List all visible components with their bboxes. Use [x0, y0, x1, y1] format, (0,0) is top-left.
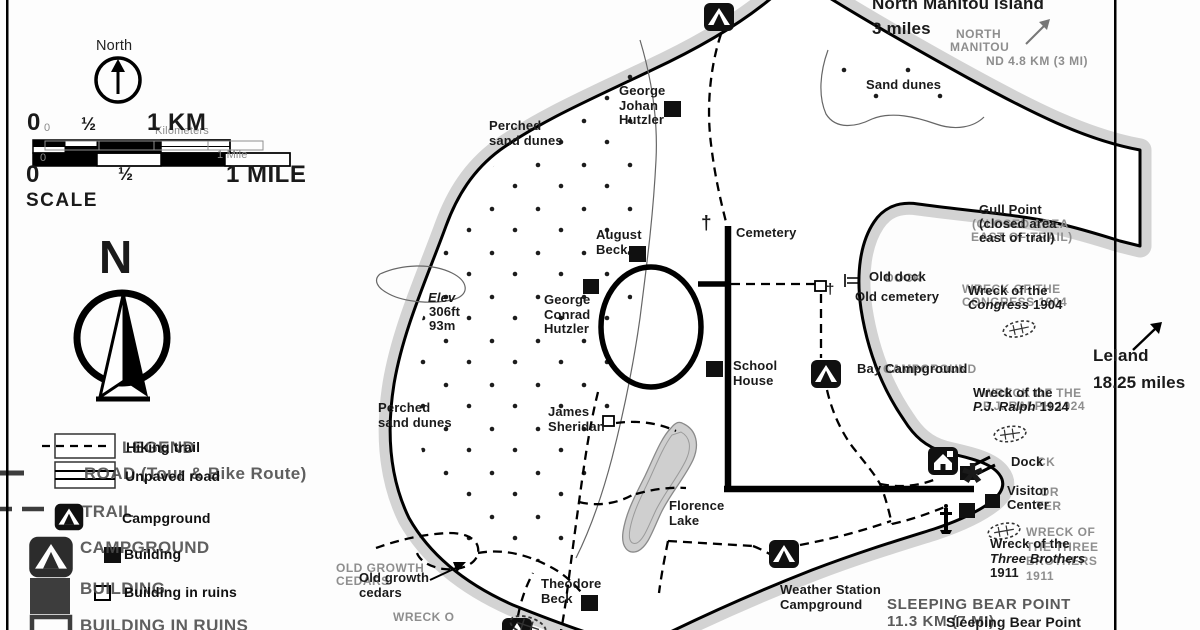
campground-icon: [55, 504, 84, 531]
ghost-scale-mile: 1 Mile: [217, 149, 248, 161]
campground-icon: [811, 360, 841, 388]
wreck-ralph-l1: Wreck of the: [973, 385, 1053, 400]
ghost-wreck-bottom: WRECK O: [393, 611, 455, 624]
label-theodore-beck: Theodore Beck: [541, 577, 601, 606]
label-james-sheridan: James Sheridan: [548, 405, 605, 434]
wreck-three-year: 1911: [990, 565, 1019, 580]
label-sleeping-bear-point: Sleeping Bear Point: [946, 615, 1081, 630]
left-border-rule: [6, 0, 9, 630]
wreck-congress-name: Congress: [968, 297, 1029, 312]
campground-icon: [769, 540, 799, 568]
old-cemetery-cross-icon: †: [826, 282, 835, 299]
compass-rose-icon: [77, 291, 167, 399]
right-border-rule: [1114, 0, 1117, 630]
scale-mi-half: ½: [118, 164, 133, 184]
ruin-square: [815, 281, 826, 291]
building-square: [985, 494, 1000, 508]
shipwreck-icon: [1002, 318, 1036, 339]
island-trail-map-page: North 0 Kilometers 0 1 Mile 0 ½ 1 KM 0 ½…: [0, 0, 1200, 630]
wreck-three-l1: Wreck of the: [990, 536, 1070, 551]
wreck-ralph-year: 1924: [1039, 399, 1069, 414]
wreck-congress-year: 1904: [1033, 297, 1063, 312]
north-arrow-icon: [96, 58, 140, 102]
building-square: [706, 361, 723, 377]
legend-ruins-ghost: BUILDING IN RUINS: [80, 616, 248, 630]
scale-km-one: 1 KM: [147, 110, 206, 137]
building-square: [664, 101, 681, 117]
label-wreck-three-brothers: Wreck of the Three Brothers 1911: [990, 537, 1085, 581]
label-sand-dunes: Sand dunes: [866, 78, 941, 93]
wreck-three-name: Three Brothers: [990, 551, 1085, 566]
label-august-beck: August Beck: [596, 228, 642, 257]
shipwreck-icon: [993, 424, 1027, 443]
legend-building: Building: [124, 547, 181, 563]
label-george-conrad-hutzler: George Conrad Hutzler: [544, 293, 590, 337]
label-florence-lake: Florence Lake: [669, 499, 724, 528]
ghost-scale-zero: 0: [44, 122, 50, 134]
wreck-ralph-name: P.J. Ralph: [973, 399, 1036, 414]
campground-icon: [502, 618, 532, 630]
legend-unpaved-road: Unpaved road: [125, 469, 220, 485]
label-gull-point: Gull Point (closed area east of trail): [979, 203, 1057, 245]
north-label: North: [96, 38, 132, 54]
label-old-dock: Old dock: [869, 270, 926, 285]
label-weather-station-campground: Weather Station Campground: [780, 583, 881, 612]
label-leland: Leland 18.25 miles: [1093, 342, 1185, 396]
label-george-johan-hutzler: George Johan Hutzler: [619, 84, 665, 128]
ghost-manitou: MANITOU: [950, 41, 1009, 54]
scale-mi-zero: 0: [26, 162, 40, 189]
label-perched-sand-dunes-top: Perched sand dunes: [489, 119, 563, 148]
compass-letter: N: [99, 232, 132, 284]
legend-campground: Campground: [122, 511, 211, 527]
scale-label: SCALE: [26, 190, 98, 211]
legend-hiking-trail: Hiking trail: [126, 440, 200, 456]
label-cemetery: Cemetery: [736, 226, 796, 241]
label-old-growth-cedars: Old growth cedars: [359, 571, 429, 600]
campground-icon: [704, 3, 734, 31]
label-visitor-center: Visitor Center: [1007, 484, 1049, 513]
wreck-congress-l1: Wreck of the: [968, 283, 1048, 298]
ranger-station-icon: [928, 447, 958, 475]
label-bay-campground: Bay Campground: [857, 362, 967, 377]
scale-km-zero: 0: [27, 110, 41, 137]
label-wreck-ralph: Wreck of the P.J. Ralph 1924: [973, 386, 1069, 414]
ghost-scale-zero-2: 0: [40, 152, 46, 164]
legend-building-in-ruins: Building in ruins: [124, 585, 237, 601]
cemetery-cross-icon: †: [701, 213, 712, 234]
label-wreck-congress: Wreck of the Congress 1904: [968, 284, 1062, 312]
label-old-cemetery: Old cemetery: [855, 290, 939, 305]
campground-icon: [29, 537, 73, 578]
scale-km-half: ½: [81, 114, 96, 134]
label-elev-m: 93m: [429, 319, 455, 334]
label-perched-sand-dunes-bottom: Perched sand dunes: [378, 401, 452, 430]
scale-mi-one: 1 MILE: [226, 162, 306, 189]
label-north-manitou-island: North Manitou Island 3 miles: [872, 0, 1044, 41]
label-dock: Dock: [1011, 455, 1043, 470]
visitor-center-star-icon: *: [962, 458, 983, 507]
label-school-house: School House: [733, 359, 777, 388]
label-sleeping-bear-point-caps: SLEEPING BEAR POINT: [887, 597, 1071, 614]
ghost-nm-distance: ND 4.8 KM (3 MI): [986, 55, 1088, 68]
